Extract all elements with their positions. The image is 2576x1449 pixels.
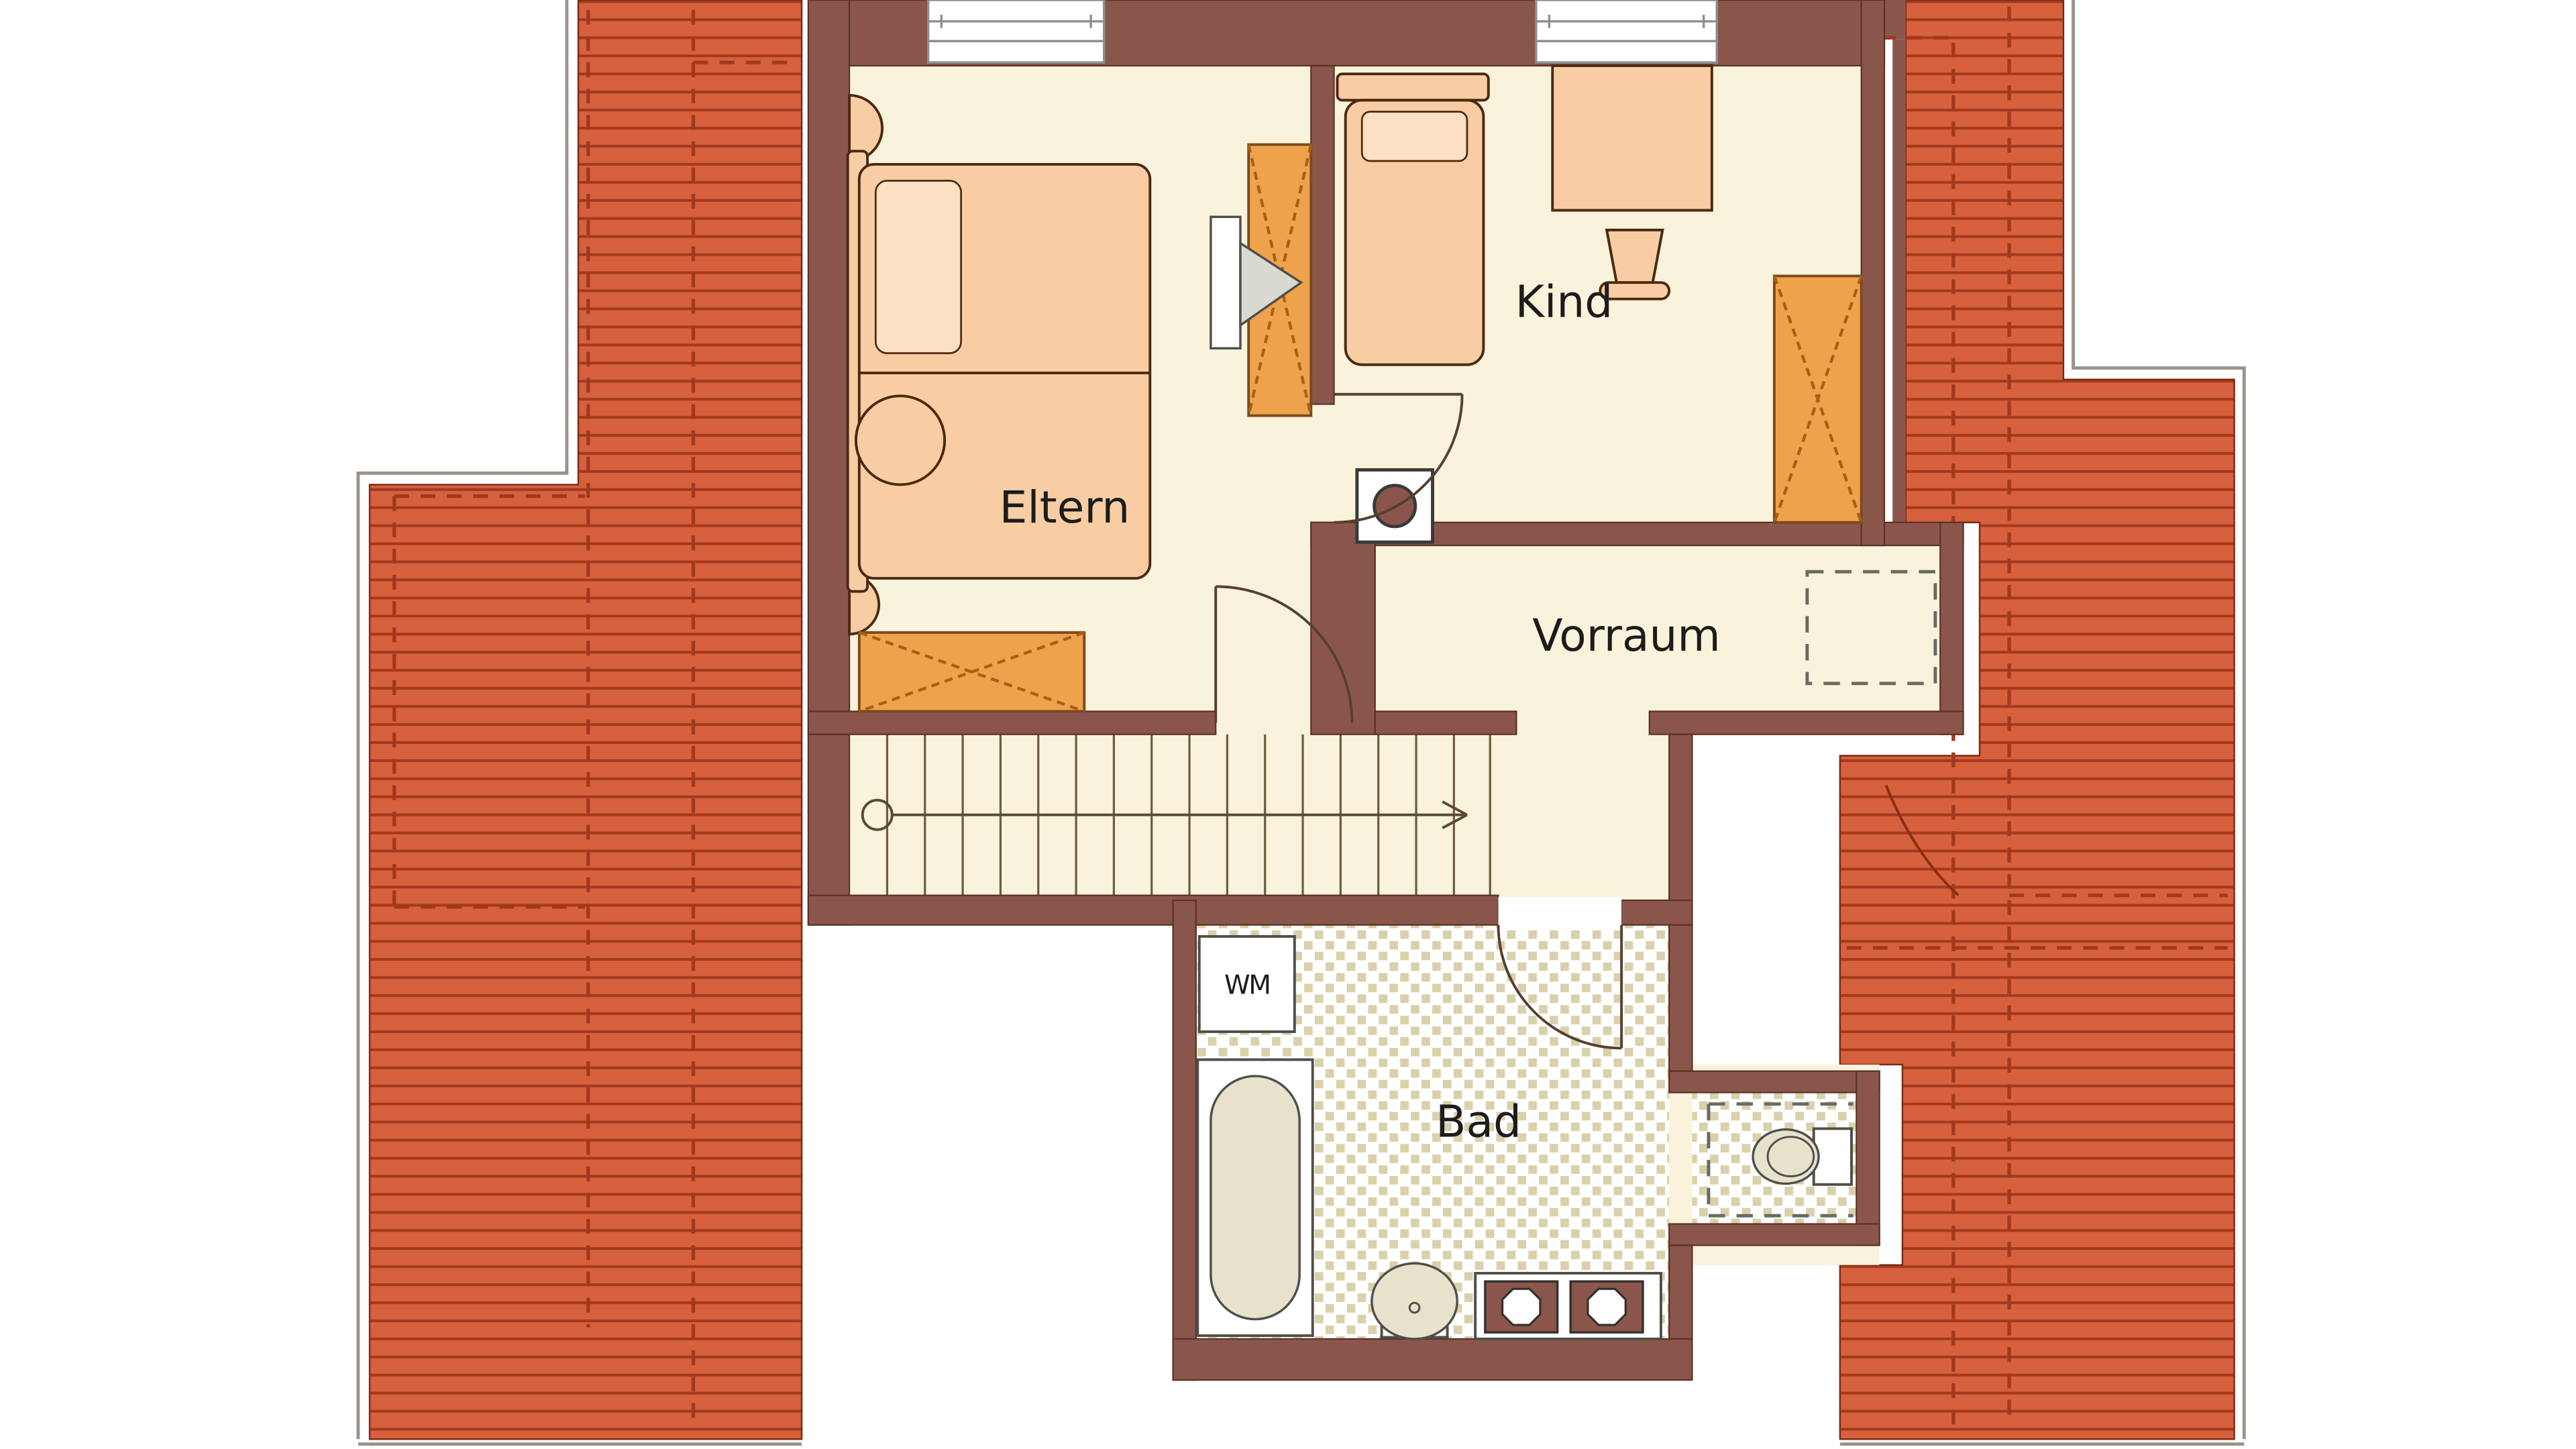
wall-bath-east-lower (1669, 1245, 1692, 1339)
skylight-knob-right-icon (1588, 1289, 1625, 1325)
bathtub (1197, 1060, 1312, 1336)
wall-corridor-east (1669, 735, 1692, 925)
wall-west (808, 0, 849, 925)
wardrobe-eltern (859, 633, 1085, 712)
floorplan-canvas: WM (0, 0, 2576, 1449)
room-label-kind: Kind (1515, 276, 1613, 328)
wall-bath-south (1173, 1339, 1693, 1380)
wall-bath-north-right (1621, 900, 1692, 925)
skylight-knob-left-icon (1503, 1289, 1540, 1325)
desk (1552, 66, 1712, 211)
window-eltern (928, 0, 1104, 62)
wall-nook-north (1669, 1071, 1879, 1093)
wall-nook-east (1856, 1071, 1879, 1246)
bath-door-threshold (1498, 897, 1621, 928)
wall-nook-south (1669, 1224, 1879, 1245)
single-bed-pillow (1362, 112, 1467, 161)
sink (1372, 1263, 1457, 1339)
wall-vorraum-east (1940, 523, 1963, 735)
washing-machine: WM (1199, 936, 1295, 1032)
room-label-eltern: Eltern (1000, 482, 1130, 533)
skylight-unit (1475, 1273, 1661, 1339)
wall-bath-east-upper (1669, 925, 1692, 1071)
wall-vorraum-west (1311, 523, 1375, 735)
bedside-table-round (856, 396, 945, 484)
mirror-panel (1211, 217, 1240, 348)
wall-bath-west (1173, 900, 1196, 1380)
wall-kind-east (1862, 0, 1884, 545)
wall-eltern-kind (1311, 66, 1334, 404)
bed-pillow (875, 180, 961, 353)
floorplan-attic: WM (0, 0, 2576, 1449)
wall-eltern-south (808, 711, 1216, 734)
window-kind (1536, 0, 1717, 62)
room-label-bad: Bad (1436, 1096, 1521, 1148)
roof-fascia-corner (1884, 0, 1906, 40)
single-bed-headboard (1337, 74, 1488, 100)
room-label-vorraum: Vorraum (1532, 610, 1721, 661)
wardrobe-kind (1774, 276, 1862, 522)
wall-stair-south (808, 896, 1499, 925)
toilet (1753, 1128, 1851, 1184)
wall-vorraum-south-left (1375, 711, 1517, 734)
washing-machine-label: WM (1224, 971, 1270, 1001)
wall-vorraum-south-right (1650, 711, 1964, 734)
floor-stairwell (808, 711, 1693, 924)
roof-fascia-strip (1892, 40, 1906, 523)
